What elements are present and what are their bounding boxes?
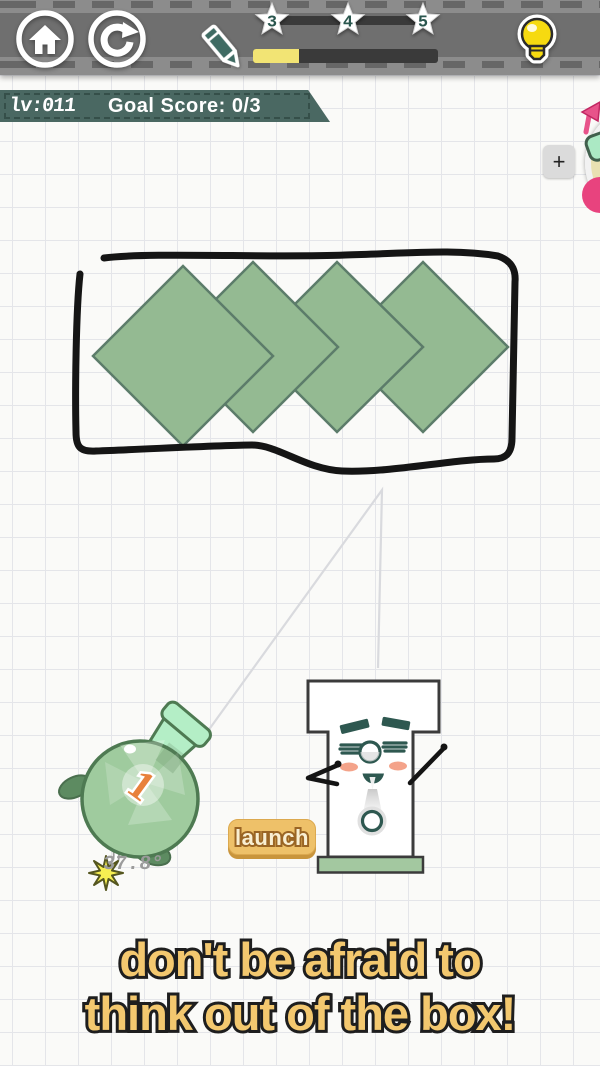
home-house-icon [29, 25, 61, 54]
progress-fill [253, 49, 299, 63]
home-button[interactable] [19, 13, 71, 65]
svg-text:5: 5 [418, 14, 428, 33]
bomb-glint [124, 745, 136, 754]
star-badge-5: 5 [407, 3, 439, 34]
add-item-button[interactable]: + [543, 145, 575, 178]
draw-ink-progress-track [253, 49, 438, 63]
diamond-blocks [93, 262, 508, 446]
blush-left [340, 763, 358, 772]
goal-score-label: Goal Score: 0/3 [108, 95, 261, 118]
hand-left [335, 761, 342, 768]
lightbulb-icon [522, 19, 552, 49]
restart-icon [91, 13, 143, 65]
level-label: lv:011 [8, 95, 76, 118]
drawing-canvas[interactable]: 1 [0, 0, 600, 1066]
launcher-base [318, 857, 423, 873]
blush-right [389, 762, 407, 771]
svg-text:4: 4 [343, 14, 353, 33]
top-bar: 3 4 5 [0, 0, 600, 75]
spin-arrow-icon [574, 96, 600, 140]
hint-text-line2: think out of the box! [0, 986, 600, 1042]
svg-text:3: 3 [267, 14, 277, 33]
level-banner: lv:011 Goal Score: 0/3 [0, 90, 330, 122]
angle-readout: 37.8° [102, 853, 164, 876]
restart-button[interactable] [91, 13, 143, 65]
star-badge-4: 4 [332, 3, 364, 34]
barrel-hole [363, 812, 382, 831]
launcher-character [308, 681, 448, 873]
hint-text-line1: don't be afraid to [0, 932, 600, 988]
eye-right [383, 743, 406, 751]
star-badge-3: 3 [256, 3, 288, 34]
launch-button[interactable]: launch [228, 819, 316, 855]
game-screen: 1 [0, 0, 600, 1066]
hand-right [441, 744, 448, 751]
hint-button[interactable] [522, 19, 552, 59]
pencil-icon [202, 26, 243, 71]
